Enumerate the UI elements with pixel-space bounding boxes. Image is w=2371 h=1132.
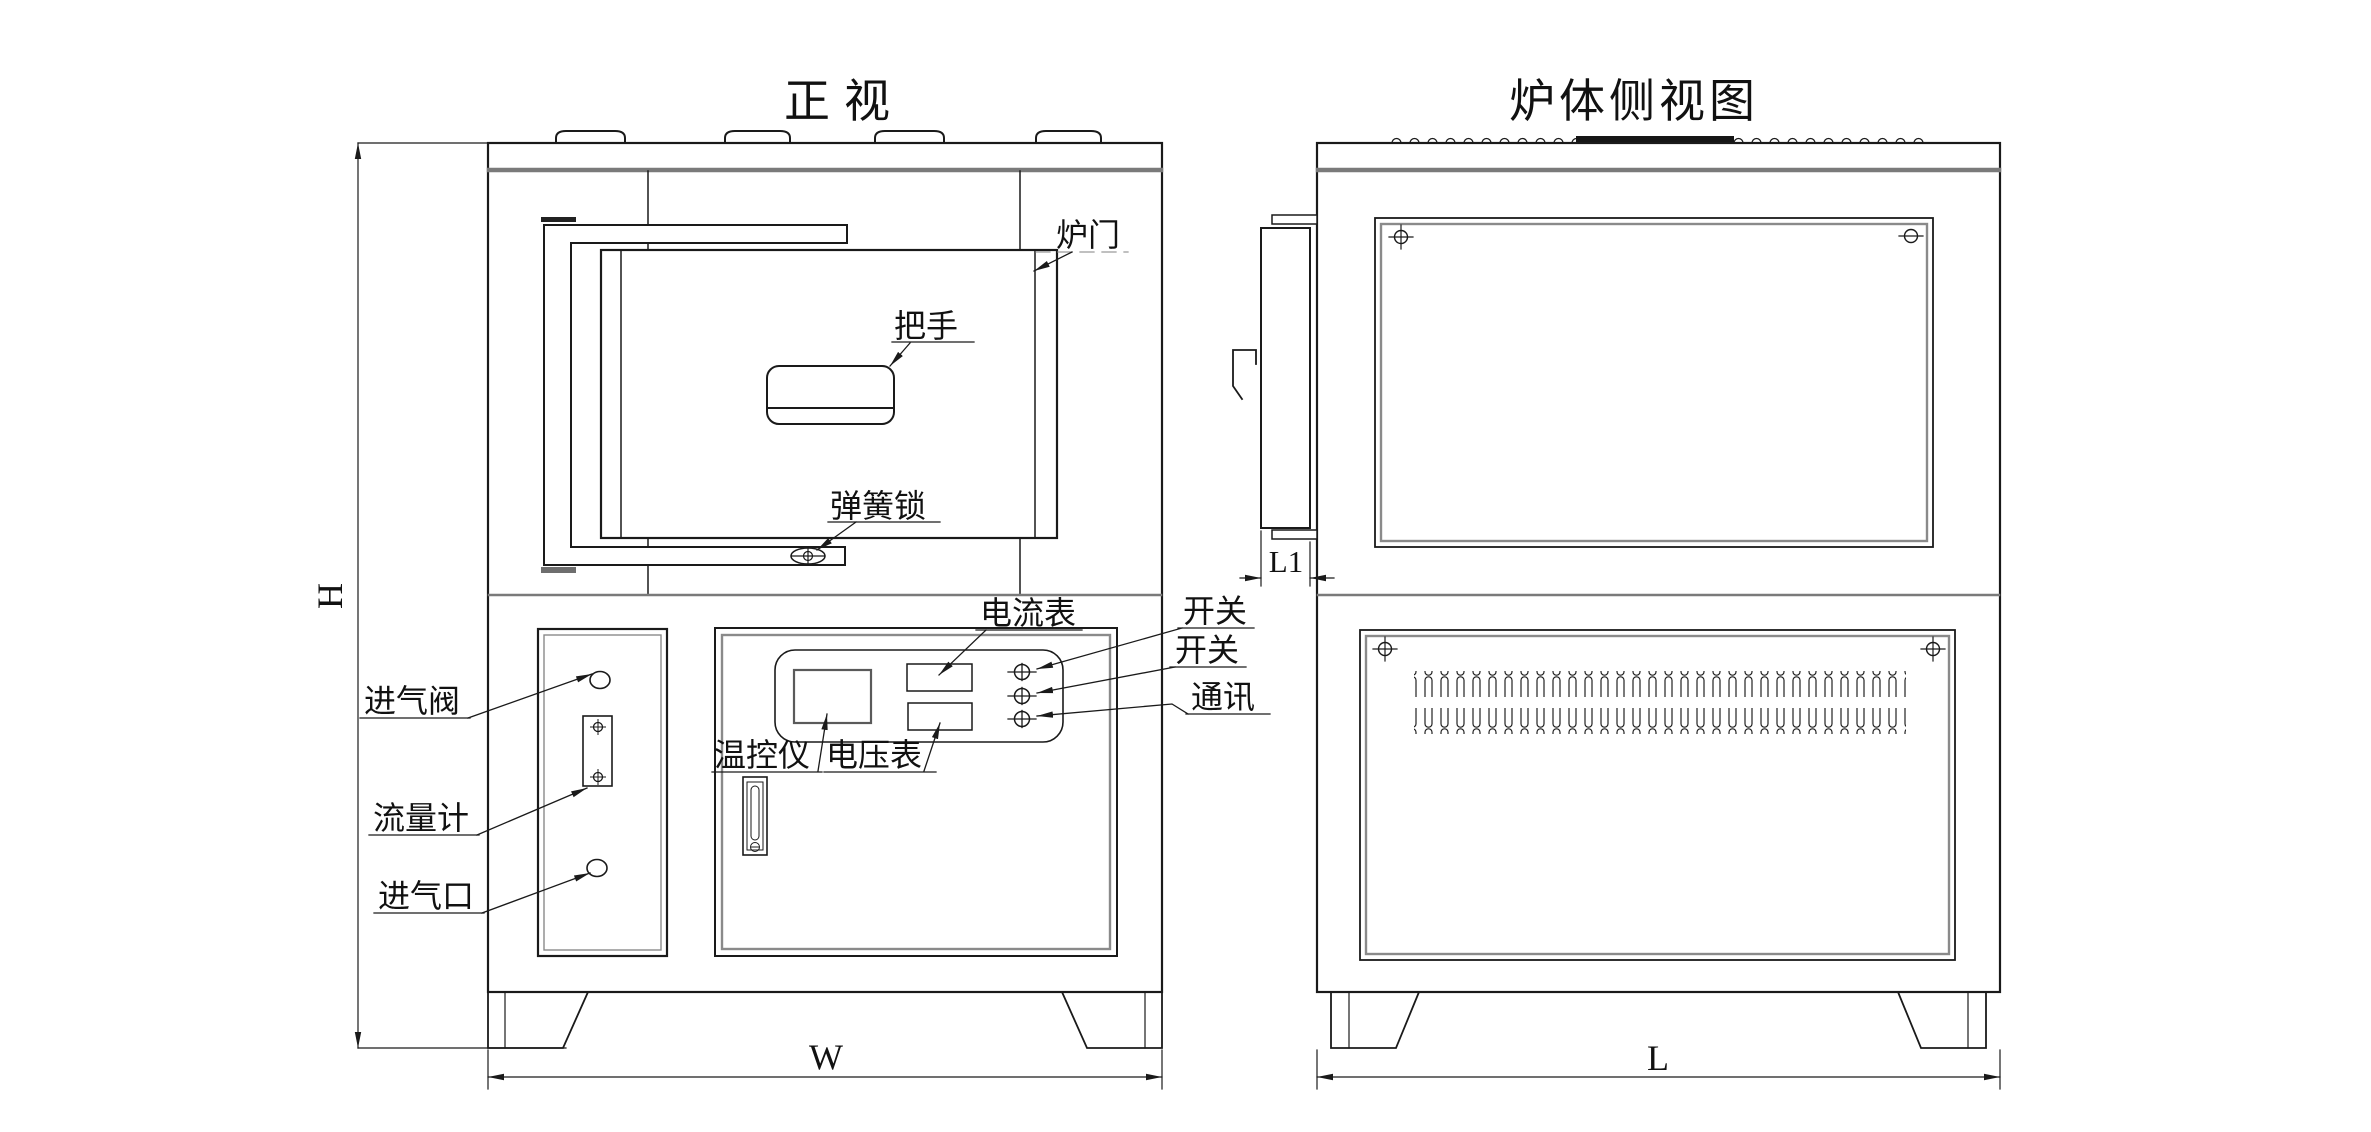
ammeter-label: 电流表 bbox=[980, 595, 1076, 631]
length-dim-label: L bbox=[1647, 1038, 1669, 1078]
top-cap-icon bbox=[556, 131, 1101, 143]
side-view-title: 炉体侧视图 bbox=[1509, 76, 1759, 127]
side-door-profile bbox=[1261, 228, 1310, 528]
voltmeter-box bbox=[908, 703, 972, 730]
temp-controller-label: 温控仪 bbox=[714, 737, 810, 773]
upper-panel-screw-right bbox=[1899, 230, 1923, 243]
lower-panel-screw-left bbox=[1373, 637, 1397, 661]
vent-slots-row-2 bbox=[1414, 708, 1906, 734]
hinge-tick-top bbox=[541, 217, 576, 222]
front-view: 正视 bbox=[310, 76, 1270, 1089]
technical-drawing-canvas: 正视 bbox=[0, 0, 2371, 1132]
door-depth-dim-label: L1 bbox=[1269, 544, 1303, 579]
ammeter-box bbox=[907, 664, 972, 691]
hinge-tick-bottom bbox=[541, 567, 576, 573]
intake-valve-label: 进气阀 bbox=[364, 683, 460, 719]
side-left-foot bbox=[1331, 992, 1419, 1048]
side-door-top-tab bbox=[1272, 215, 1317, 224]
side-upper-panel bbox=[1375, 218, 1933, 547]
door-label: 炉门 bbox=[1056, 217, 1120, 253]
side-door-handle-hook bbox=[1233, 350, 1256, 399]
front-left-foot bbox=[488, 992, 588, 1048]
vent-slots-row-1 bbox=[1414, 671, 1906, 697]
spring-lock-icon bbox=[791, 548, 825, 564]
width-dimension: W bbox=[488, 1037, 1162, 1089]
door-handle bbox=[767, 366, 894, 424]
width-dim-label: W bbox=[809, 1037, 843, 1077]
side-door-bottom-tab bbox=[1272, 530, 1317, 539]
side-body-outline bbox=[1317, 143, 2000, 992]
handle-label: 把手 bbox=[894, 308, 958, 344]
flow-meter-label: 流量计 bbox=[373, 800, 469, 836]
temp-controller-window bbox=[794, 670, 871, 723]
length-dimension: L bbox=[1317, 1038, 2000, 1089]
air-inlet-label: 进气口 bbox=[378, 878, 474, 914]
spring-lock-label: 弹簧锁 bbox=[830, 488, 926, 524]
intake-valve-port bbox=[590, 672, 610, 689]
air-inlet-port bbox=[587, 860, 607, 877]
height-dim-label: H bbox=[310, 583, 350, 609]
comm-label: 通讯 bbox=[1191, 679, 1255, 715]
side-view: 炉体侧视图 L1 bbox=[1233, 76, 2000, 1089]
voltmeter-label: 电压表 bbox=[826, 737, 922, 773]
sight-glass-icon bbox=[743, 777, 767, 855]
lower-panel-screw-right bbox=[1921, 637, 1945, 661]
side-upper-panel-inner-border bbox=[1381, 224, 1927, 541]
upper-panel-screw-left bbox=[1389, 225, 1413, 249]
switch-2-label: 开关 bbox=[1175, 632, 1239, 668]
front-view-title: 正视 bbox=[784, 76, 904, 127]
furnace-drawing: 正视 bbox=[0, 0, 2371, 1132]
switch-1-label: 开关 bbox=[1183, 593, 1247, 629]
side-right-foot bbox=[1898, 992, 1986, 1048]
front-right-foot bbox=[1062, 992, 1162, 1048]
